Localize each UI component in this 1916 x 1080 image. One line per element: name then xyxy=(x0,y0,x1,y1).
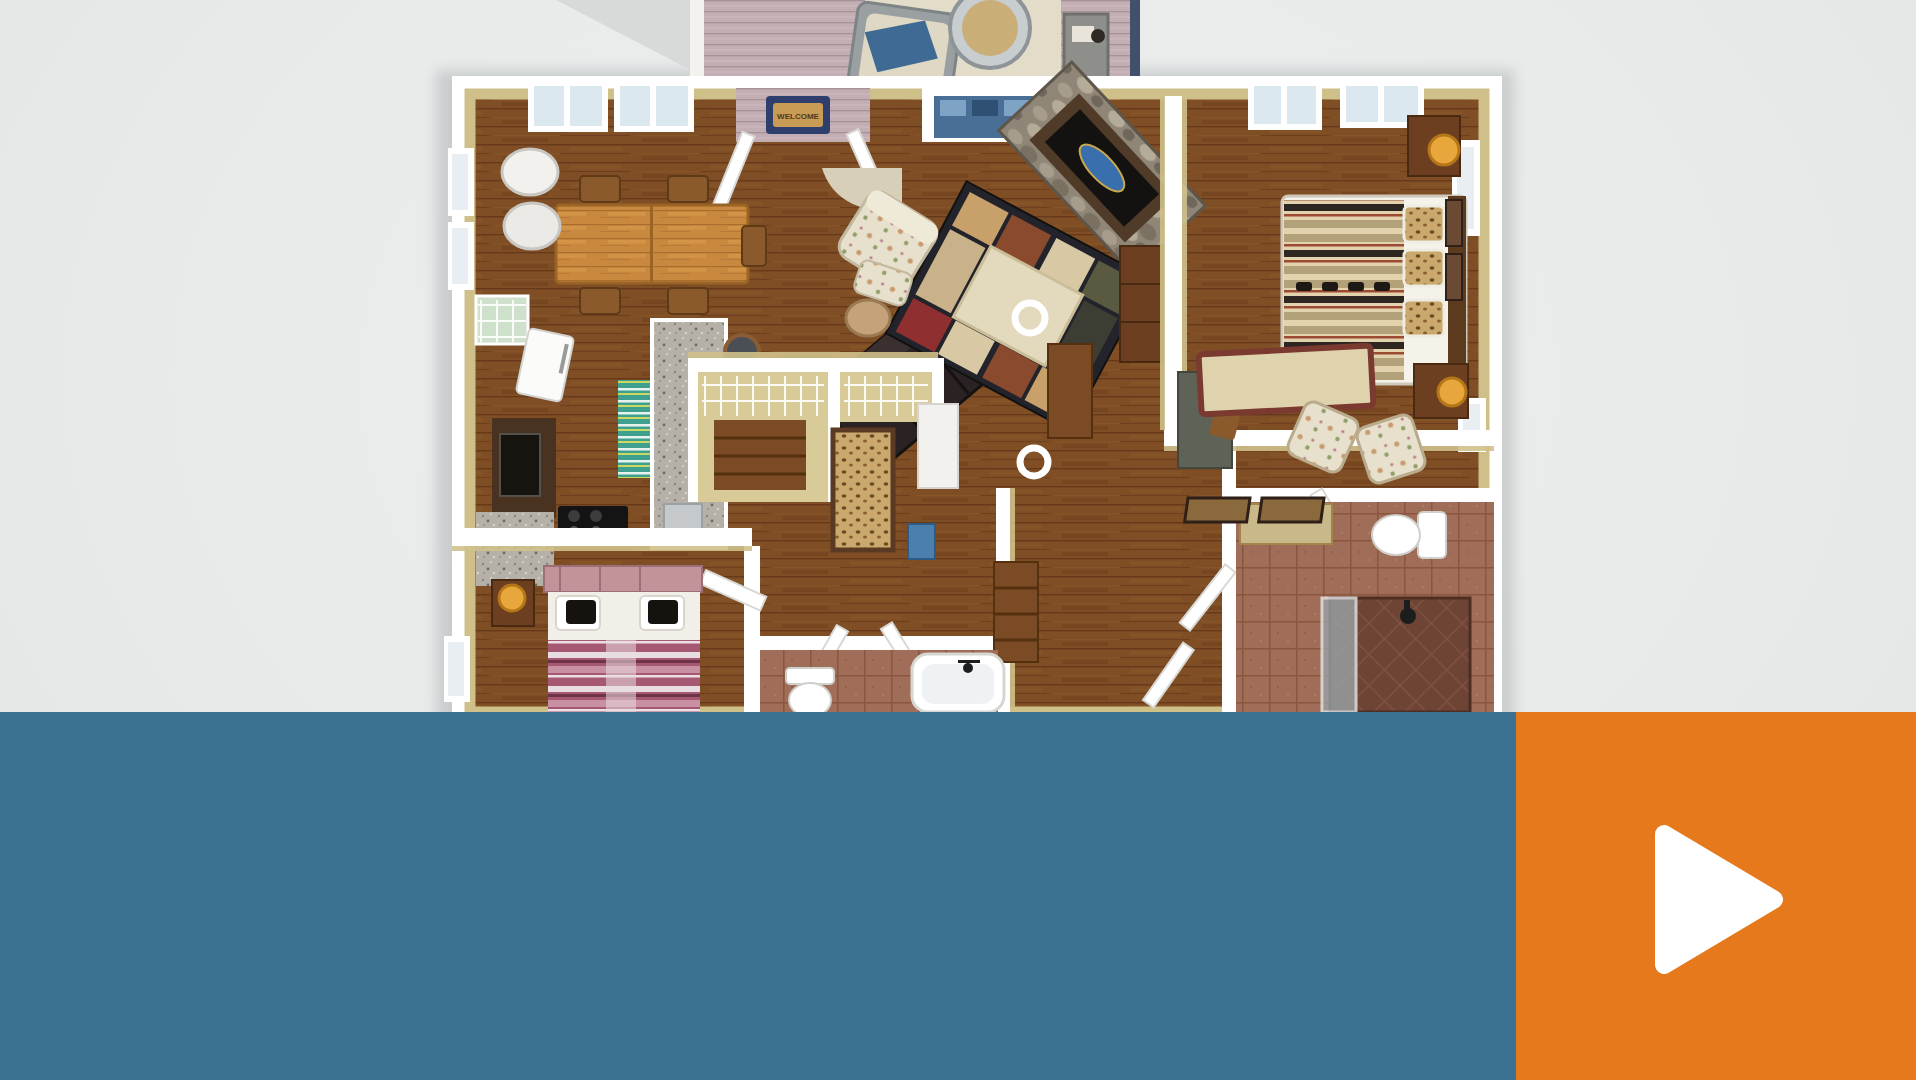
toilet-icon-2 xyxy=(1372,512,1446,558)
shower-glass xyxy=(1322,598,1356,712)
play-button[interactable] xyxy=(1516,712,1916,1080)
floor-plan-illustration: WELCOME xyxy=(0,0,1916,712)
bedroom-rug xyxy=(1199,346,1374,415)
bed-pillow xyxy=(1404,206,1444,242)
washer-icon xyxy=(918,404,958,488)
bear-pillow xyxy=(566,600,596,624)
nightstand-lamp-second xyxy=(492,580,534,626)
welcome-mat-text: WELCOME xyxy=(777,112,819,121)
bathtub-icon xyxy=(912,654,1004,712)
bear-pillow xyxy=(648,600,678,624)
ladder-shelf xyxy=(994,562,1038,662)
leopard-runner-rug xyxy=(833,430,893,550)
deck-round-table xyxy=(950,0,1030,68)
bed-pillow xyxy=(1404,250,1444,286)
burl-side-table xyxy=(846,300,890,336)
banner-orange-panel xyxy=(1516,712,1916,1080)
shower-stall xyxy=(1322,598,1470,712)
bed-second xyxy=(544,566,702,712)
floor-plan-svg: WELCOME xyxy=(0,0,1916,712)
roof-edge xyxy=(556,0,706,78)
bed-pillow xyxy=(1404,300,1444,336)
toilet-icon xyxy=(786,668,834,712)
banner-blue-panel: Floor Plans Accurate visual layouts xyxy=(0,712,1516,1080)
blue-art xyxy=(908,524,935,559)
video-thumbnail: WELCOME xyxy=(0,0,1916,1080)
wall-oven-icon xyxy=(500,434,540,496)
play-triangle-icon xyxy=(1516,712,1916,1080)
bathroom-center xyxy=(760,650,1004,712)
dining-table xyxy=(556,205,748,283)
